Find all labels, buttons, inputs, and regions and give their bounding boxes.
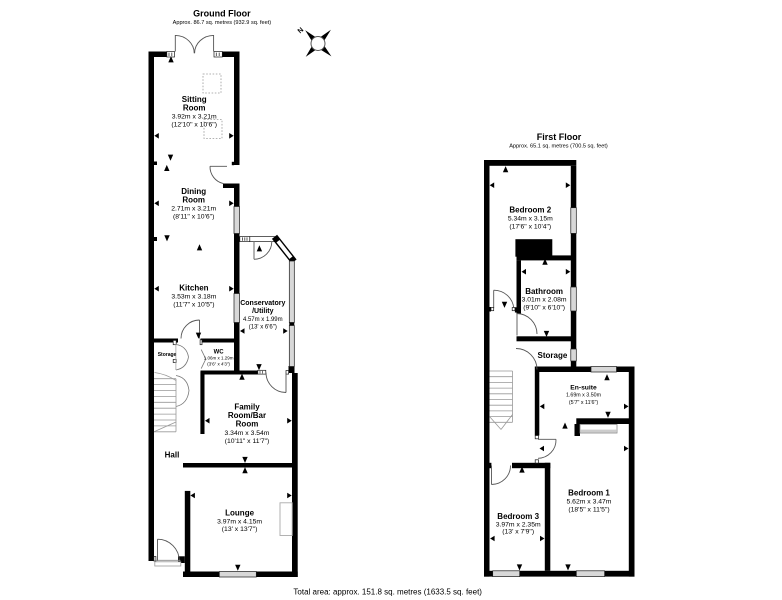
svg-text:Storage: Storage xyxy=(158,352,177,358)
svg-text:5.62m x 3.47m: 5.62m x 3.47m xyxy=(567,499,612,506)
svg-text:Room: Room xyxy=(236,420,259,429)
svg-text:Approx. 86.7 sq. metres (932.9: Approx. 86.7 sq. metres (932.9 sq. feet) xyxy=(173,20,272,26)
svg-text:Room: Room xyxy=(183,104,206,113)
svg-text:(5'7" x 11'6"): (5'7" x 11'6") xyxy=(569,400,598,406)
svg-text:3.97m x 4.15m: 3.97m x 4.15m xyxy=(217,518,262,525)
svg-text:Approx. 65.1 sq. metres (700.5: Approx. 65.1 sq. metres (700.5 sq. feet) xyxy=(509,144,608,150)
svg-text:4.57m x 1.99m: 4.57m x 1.99m xyxy=(243,317,283,323)
svg-text:First Floor: First Floor xyxy=(537,132,582,142)
svg-text:5.34m x 3.15m: 5.34m x 3.15m xyxy=(508,216,553,223)
svg-text:1.06m x 1.29m: 1.06m x 1.29m xyxy=(204,356,234,361)
svg-text:(10'11" x 11'7"): (10'11" x 11'7") xyxy=(225,438,270,445)
svg-text:Kitchen: Kitchen xyxy=(179,283,208,292)
svg-text:(18'5" x 11'5"): (18'5" x 11'5") xyxy=(568,506,609,513)
svg-text:(13' x 7'9"): (13' x 7'9") xyxy=(502,529,534,536)
svg-text:Hall: Hall xyxy=(165,450,180,459)
svg-text:(17'6" x 10'4"): (17'6" x 10'4") xyxy=(509,223,551,230)
svg-text:(13' x 13'7"): (13' x 13'7") xyxy=(222,526,258,533)
svg-text:Bedroom 2: Bedroom 2 xyxy=(509,206,551,215)
svg-text:Conservatory: Conservatory xyxy=(240,300,285,307)
svg-text:Ground Floor: Ground Floor xyxy=(193,8,251,18)
svg-text:3.97m x 2.35m: 3.97m x 2.35m xyxy=(496,521,541,528)
svg-text:(3'6" x 4'3"): (3'6" x 4'3") xyxy=(207,362,230,367)
svg-text:(11'7" x 10'5"): (11'7" x 10'5") xyxy=(173,301,214,308)
svg-text:3.53m x 3.18m: 3.53m x 3.18m xyxy=(171,294,216,301)
svg-text:(9'10" x 6'10"): (9'10" x 6'10") xyxy=(523,304,565,311)
svg-text:(8'11" x 10'6"): (8'11" x 10'6") xyxy=(173,214,214,221)
svg-text:Total area: approx. 151.8 sq.: Total area: approx. 151.8 sq. metres (16… xyxy=(293,587,482,596)
svg-text:3.01m x 2.08m: 3.01m x 2.08m xyxy=(522,297,567,304)
svg-text:3.34m x 3.54m: 3.34m x 3.54m xyxy=(225,430,270,437)
svg-text:(12'10" x 10'6"): (12'10" x 10'6") xyxy=(171,121,217,128)
svg-text:1.69m x 3.50m: 1.69m x 3.50m xyxy=(566,393,602,399)
svg-text:3.92m x 3.21m: 3.92m x 3.21m xyxy=(172,113,217,120)
svg-text:WC: WC xyxy=(214,350,225,356)
svg-text:Bathroom: Bathroom xyxy=(525,287,563,296)
svg-text:/Utility: /Utility xyxy=(252,308,273,315)
svg-text:Lounge: Lounge xyxy=(225,509,254,518)
svg-text:Room: Room xyxy=(182,196,205,205)
svg-text:En-suite: En-suite xyxy=(570,385,597,392)
svg-text:Bedroom 3: Bedroom 3 xyxy=(497,512,539,521)
svg-text:(13' x 6'6"): (13' x 6'6") xyxy=(249,324,277,330)
svg-text:2.71m x 3.21m: 2.71m x 3.21m xyxy=(171,205,216,212)
svg-text:Storage: Storage xyxy=(538,351,568,360)
svg-text:Bedroom 1: Bedroom 1 xyxy=(568,489,610,498)
